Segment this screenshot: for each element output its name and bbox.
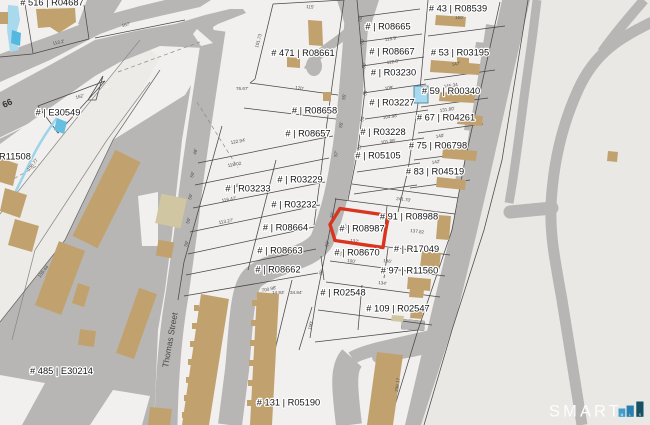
svg-text:136': 136' (383, 258, 392, 264)
svg-text:55': 55' (341, 93, 347, 100)
svg-text:# | R08665: # | R08665 (365, 21, 410, 31)
svg-text:M: M (621, 413, 624, 417)
svg-text:160': 160' (455, 15, 464, 20)
svg-text:# | R03227: # | R03227 (369, 97, 414, 107)
svg-text:# | R08987: # | R08987 (339, 223, 384, 233)
svg-text:# | R08658: # | R08658 (292, 105, 337, 115)
svg-text:115': 115' (306, 4, 315, 10)
svg-text:# 97 | R11560: # 97 | R11560 (381, 265, 439, 275)
svg-text:R11508: R11508 (0, 151, 31, 161)
svg-text:100': 100' (347, 258, 356, 264)
svg-text:# 471 | R08661: # 471 | R08661 (271, 48, 334, 58)
svg-text:# 67 | R04261: # 67 | R04261 (417, 112, 475, 122)
svg-text:# | R03230: # | R03230 (371, 67, 416, 77)
svg-text:# 53 | R03195: # 53 | R03195 (431, 47, 489, 57)
svg-text:# 131 | R05190: # 131 | R05190 (257, 397, 320, 407)
svg-text:# 516 | R04687: # 516 | R04687 (20, 0, 83, 7)
svg-text:# | R08670: # | R08670 (334, 247, 379, 257)
svg-text:# | R08664: # | R08664 (263, 222, 308, 232)
svg-text:S: S (639, 413, 641, 417)
svg-text:# | R08667: # | R08667 (369, 46, 414, 56)
svg-text:# 75 | R06798: # 75 | R06798 (409, 140, 467, 150)
svg-text:55': 55' (338, 121, 344, 128)
svg-text:# | R08657: # | R08657 (285, 128, 330, 138)
svg-text:# | R03232: # | R03232 (271, 199, 316, 209)
svg-text:57': 57' (333, 150, 339, 157)
svg-text:SMART: SMART (549, 403, 622, 421)
svg-text:# 43 | R08539: # 43 | R08539 (429, 3, 487, 13)
svg-text:# 109 | R02547: # 109 | R02547 (366, 303, 429, 313)
svg-text:# | R03233: # | R03233 (225, 183, 270, 193)
svg-text:# | R03229: # | R03229 (277, 174, 322, 184)
svg-text:# | R08662: # | R08662 (255, 264, 300, 274)
svg-text:# | R02548: # | R02548 (320, 287, 365, 297)
svg-text:# 91 | R08988: # 91 | R08988 (380, 211, 438, 221)
svg-text:# | R03228: # | R03228 (360, 127, 405, 137)
svg-text:# | R08663: # | R08663 (257, 245, 302, 255)
svg-text:# | E30549: # | E30549 (36, 107, 81, 117)
svg-text:14.93': 14.93' (272, 290, 284, 295)
svg-text:# | R05105: # | R05105 (355, 150, 400, 160)
svg-text:# | R17049: # | R17049 (394, 244, 439, 254)
svg-text:134': 134' (378, 280, 387, 286)
svg-text:76.67': 76.67' (236, 86, 248, 91)
svg-text:34.84': 34.84' (290, 290, 302, 295)
svg-text:L: L (629, 413, 631, 417)
svg-text:# 485 | E30214: # 485 | E30214 (30, 366, 93, 376)
svg-text:# 83 | R04519: # 83 | R04519 (406, 166, 464, 176)
svg-text:# 59 | R00340: # 59 | R00340 (422, 86, 480, 96)
